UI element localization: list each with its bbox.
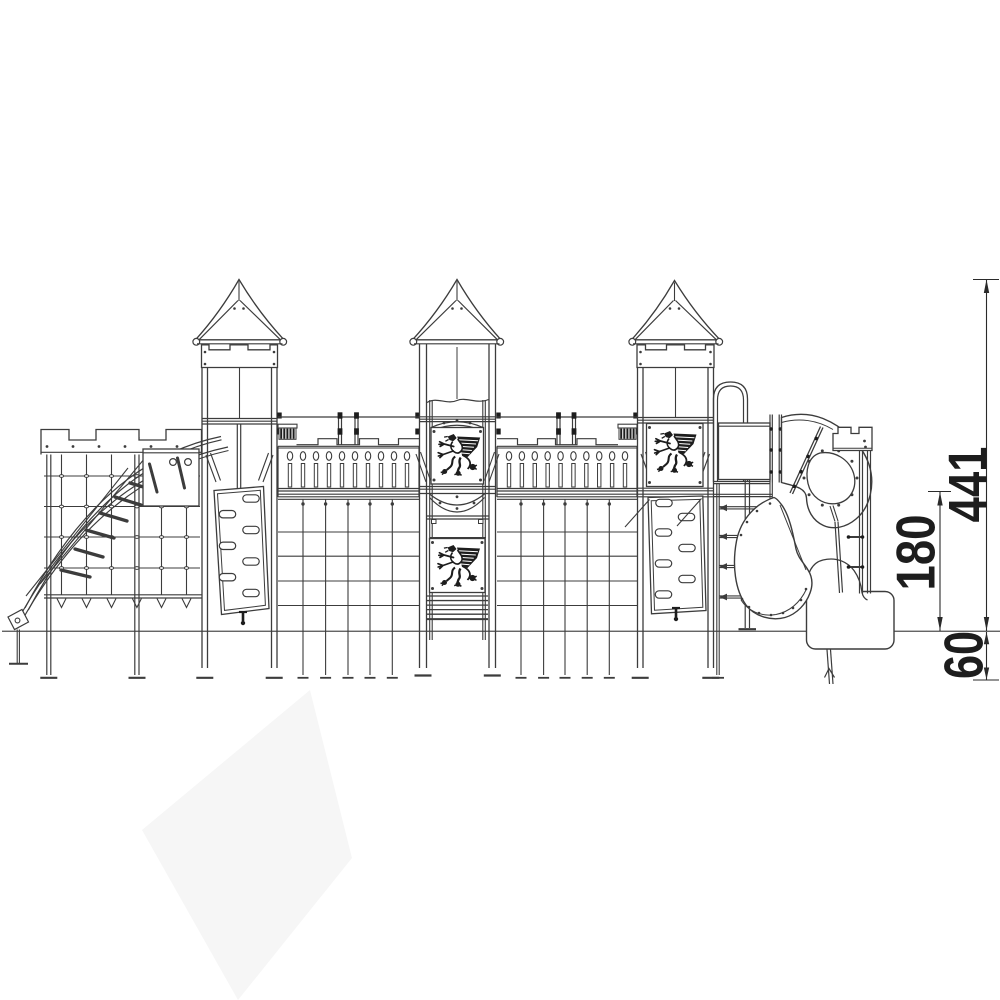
svg-text:441: 441 <box>937 447 999 523</box>
svg-text:60: 60 <box>933 631 995 679</box>
svg-text:180: 180 <box>885 515 947 591</box>
